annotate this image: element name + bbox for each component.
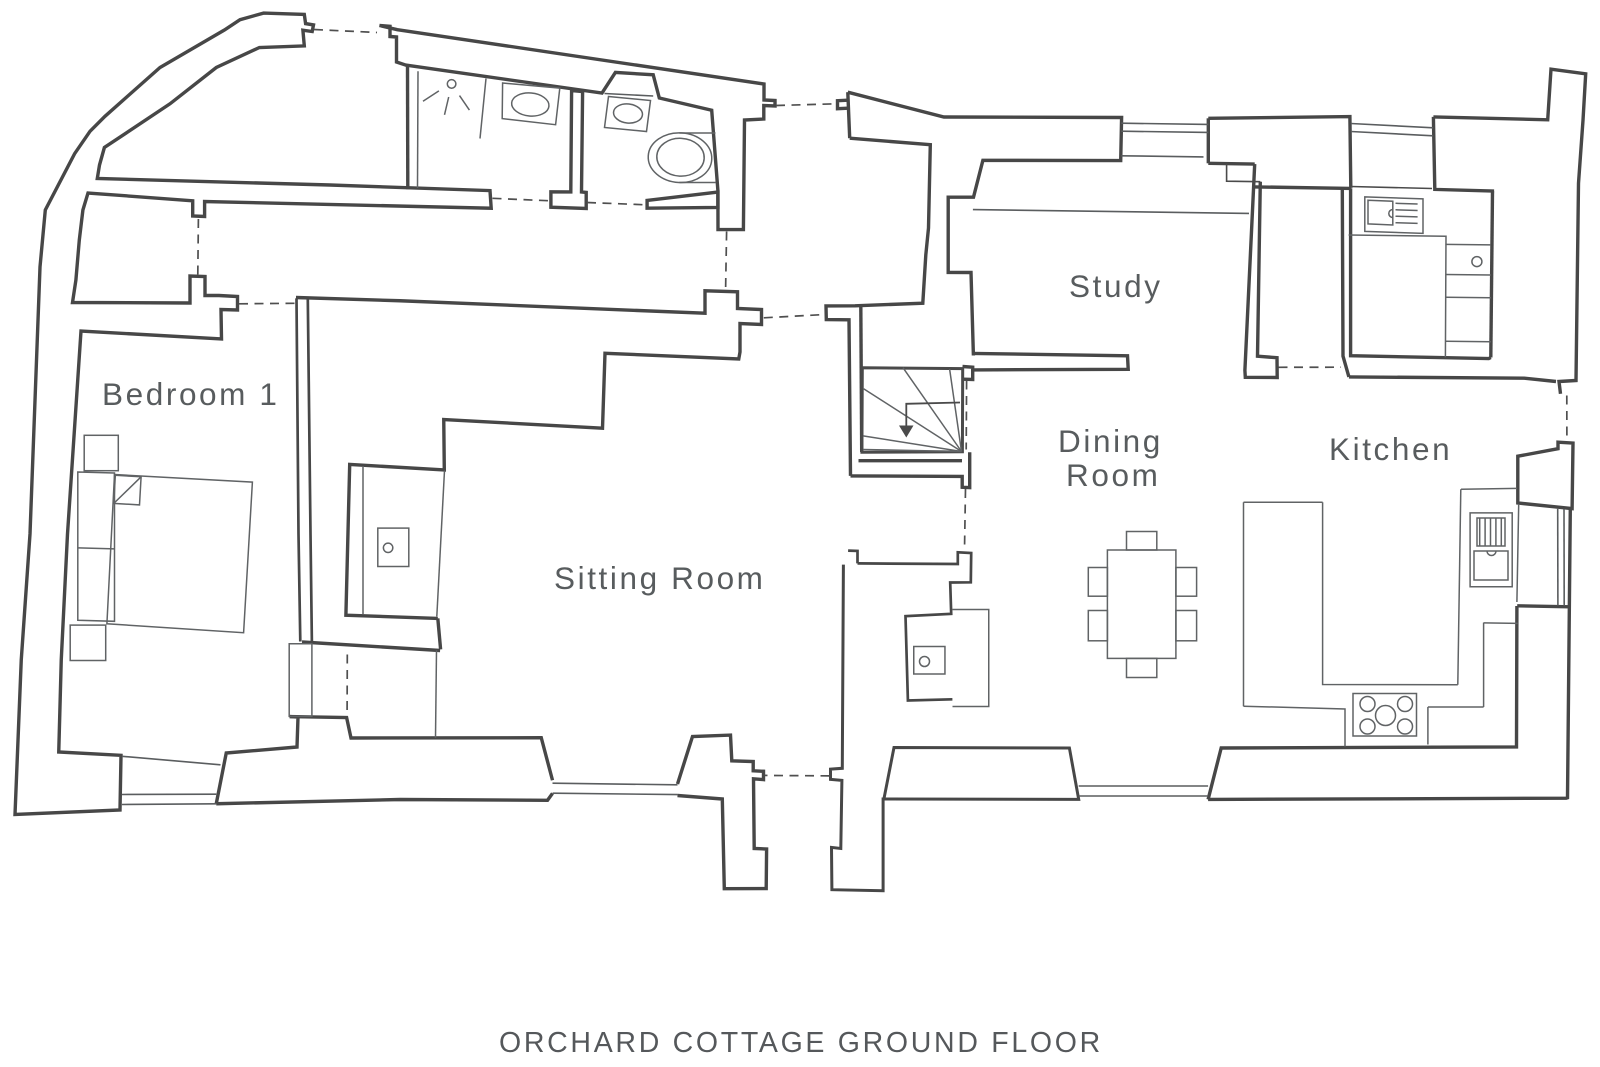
svg-text:Study: Study	[1069, 268, 1163, 304]
svg-text:Room: Room	[1066, 457, 1160, 493]
svg-text:ORCHARD COTTAGE GROUND FLOOR: ORCHARD COTTAGE GROUND FLOOR	[499, 1027, 1103, 1059]
svg-text:Bedroom 1: Bedroom 1	[102, 376, 280, 412]
svg-text:Sitting Room: Sitting Room	[554, 560, 766, 596]
svg-text:Kitchen: Kitchen	[1329, 431, 1452, 467]
svg-text:Dining: Dining	[1058, 423, 1163, 459]
